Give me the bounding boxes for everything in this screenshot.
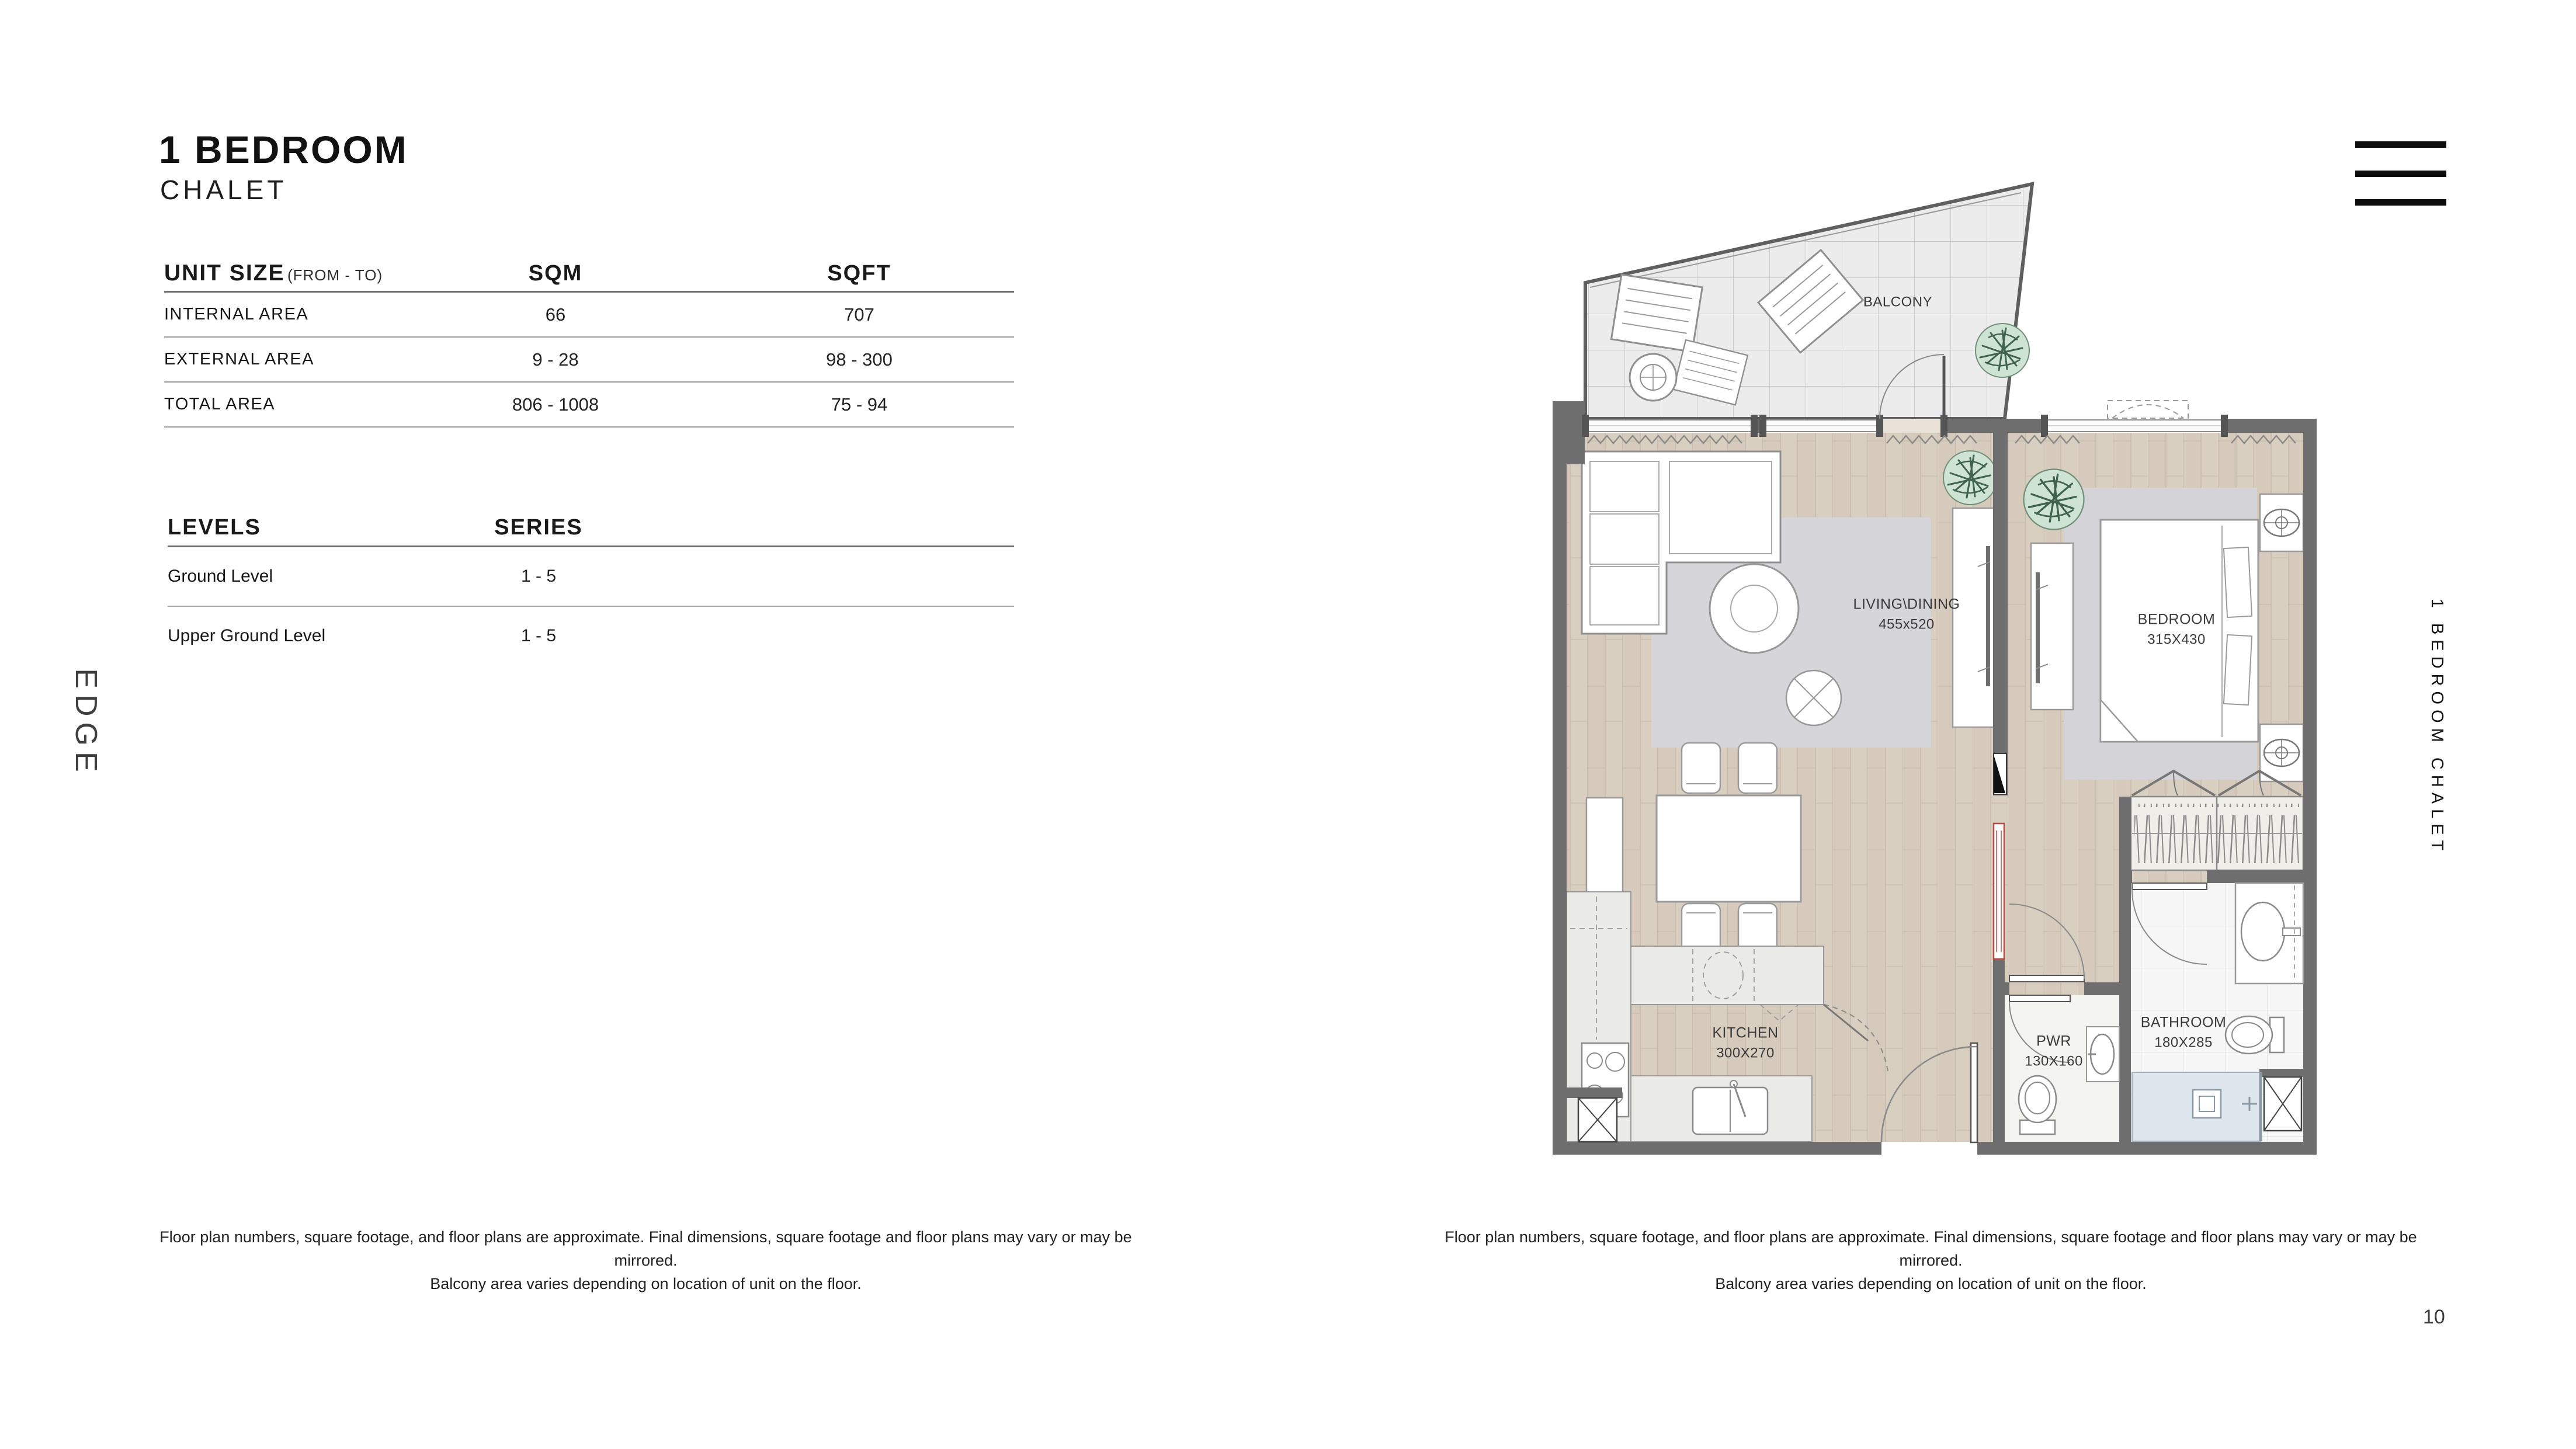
room-dimensions: 180X285 (2141, 1033, 2227, 1054)
row-sqm-value: 9 - 28 (442, 349, 669, 370)
column-header-levels: LEVELS (168, 515, 425, 540)
row-label: TOTAL AREA (164, 395, 442, 414)
room-dimensions: 455x520 (1853, 615, 1960, 635)
wall-wedge (1994, 753, 2006, 794)
floor-plan-drawing (1553, 169, 2319, 1158)
disclaimer-line: Balcony area varies depending on locatio… (157, 1272, 1135, 1295)
table-row-upper-ground-level: Upper Ground Level 1 - 5 (168, 607, 1014, 665)
bathroom-vanity (2235, 883, 2303, 984)
living-plant (1943, 451, 1997, 505)
row-label: Ground Level (168, 567, 425, 586)
bathroom-toilet (2226, 1016, 2284, 1054)
disclaimer-line: Floor plan numbers, square footage, and … (1442, 1225, 2420, 1272)
coffee-table (1710, 564, 1799, 653)
room-dimensions: 315X430 (2138, 630, 2216, 651)
window-projection (2108, 401, 2188, 418)
unit-size-title: UNIT SIZE (164, 260, 285, 286)
disclaimer-line: Floor plan numbers, square footage, and … (157, 1225, 1135, 1272)
row-label: Upper Ground Level (168, 626, 425, 646)
side-section-label: 1 BEDROOM CHALET (2423, 575, 2446, 879)
row-label: EXTERNAL AREA (164, 350, 442, 369)
side-table (1786, 670, 1841, 725)
levels-table: LEVELS SERIES Ground Level 1 - 5 Upper G… (168, 509, 1014, 665)
column-header-sqm: SQM (442, 261, 669, 286)
row-series-value: 1 - 5 (425, 626, 652, 646)
room-name: BATHROOM (2141, 1012, 2227, 1033)
page-subtitle: CHALET (160, 174, 287, 206)
tv-unit-bedroom (2031, 543, 2073, 710)
row-sqm-value: 66 (442, 304, 669, 325)
bedroom-plant (2023, 469, 2084, 529)
bedside-lamp (2264, 739, 2299, 766)
column-header-series: SERIES (425, 515, 652, 540)
edge-logo: EDGE (68, 653, 103, 793)
table-row-total-area: TOTAL AREA 806 - 1008 75 - 94 (164, 383, 1014, 428)
room-label-bedroom: BEDROOM 315X430 (2138, 609, 2216, 650)
room-dimensions: 300X270 (1712, 1044, 1778, 1064)
kitchen-sink (1693, 1080, 1768, 1134)
disclaimer-right: Floor plan numbers, square footage, and … (1442, 1225, 2420, 1295)
menu-bar (2355, 199, 2446, 206)
room-name: BEDROOM (2138, 609, 2216, 630)
row-label: INTERNAL AREA (164, 305, 442, 324)
column-header-sqft: SQFT (745, 261, 973, 286)
pwr-sink (2087, 1027, 2119, 1082)
unit-size-header-row: UNIT SIZE (FROM - TO) SQM SQFT (164, 256, 1014, 293)
row-sqft-value: 75 - 94 (745, 394, 973, 415)
row-sqft-value: 98 - 300 (745, 349, 973, 370)
page-number: 10 (2423, 1306, 2445, 1329)
room-name: LIVING\DINING (1853, 593, 1960, 614)
disclaimer-line: Balcony area varies depending on locatio… (1442, 1272, 2420, 1295)
room-label-kitchen: KITCHEN 300X270 (1712, 1022, 1778, 1064)
room-name: KITCHEN (1712, 1022, 1778, 1043)
balcony-plant (1976, 324, 2029, 377)
pwr-toilet (2019, 1076, 2056, 1134)
unit-size-title-note: (FROM - TO) (287, 266, 383, 284)
levels-header-row: LEVELS SERIES (168, 509, 1014, 547)
row-series-value: 1 - 5 (425, 567, 652, 586)
table-row-internal-area: INTERNAL AREA 66 707 (164, 293, 1014, 338)
console-cabinet (1586, 798, 1623, 905)
balcony-area (1585, 184, 2032, 419)
room-name: PWR (2025, 1030, 2083, 1051)
balcony-round-table (1630, 354, 1676, 401)
floor-plan: BALCONY LIVING\DINING 455x520 BEDROOM 31… (1553, 169, 2319, 1158)
utility-riser-marker (1994, 823, 2004, 959)
row-sqm-value: 806 - 1008 (442, 394, 669, 415)
room-name: BALCONY (1863, 293, 1932, 313)
room-label-bathroom: BATHROOM 180X285 (2141, 1012, 2227, 1053)
page-title: 1 BEDROOM (159, 127, 408, 172)
room-label-balcony: BALCONY (1863, 293, 1932, 313)
room-label-living-dining: LIVING\DINING 455x520 (1853, 593, 1960, 635)
table-row-external-area: EXTERNAL AREA 9 - 28 98 - 300 (164, 338, 1014, 383)
row-sqft-value: 707 (745, 304, 973, 325)
brochure-page: 1 BEDROOM CHALET UNIT SIZE (FROM - TO) S… (0, 0, 2576, 1449)
room-dimensions: 130X160 (2025, 1052, 2083, 1072)
table-row-ground-level: Ground Level 1 - 5 (168, 547, 1014, 607)
shaft-box (1578, 1098, 1617, 1142)
menu-icon[interactable] (2355, 141, 2446, 207)
menu-bar (2355, 171, 2446, 177)
room-label-pwr: PWR 130X160 (2025, 1030, 2083, 1072)
disclaimer-left: Floor plan numbers, square footage, and … (157, 1225, 1135, 1295)
unit-size-table: UNIT SIZE (FROM - TO) SQM SQFT INTERNAL … (164, 256, 1014, 428)
menu-bar (2355, 141, 2446, 148)
bedside-lamp (2264, 509, 2299, 536)
unit-size-title-cell: UNIT SIZE (FROM - TO) (164, 260, 442, 286)
shaft-box (2264, 1077, 2301, 1131)
